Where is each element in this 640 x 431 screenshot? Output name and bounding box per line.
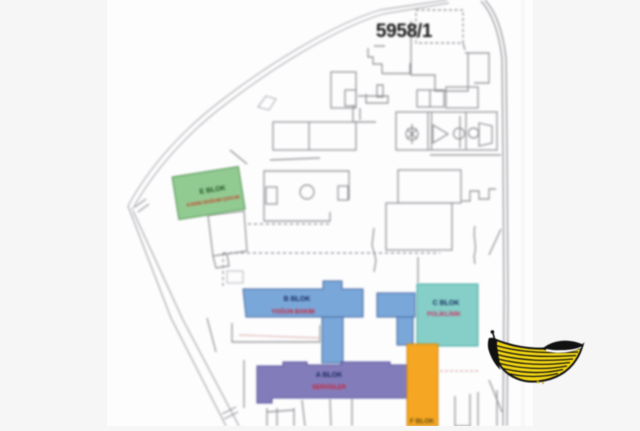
- svg-text:5958/1: 5958/1: [376, 21, 433, 42]
- svg-text:YOĞUN BAKIM: YOĞUN BAKIM: [271, 308, 314, 316]
- svg-text:SERVİSLER: SERVİSLER: [312, 384, 347, 391]
- svg-text:C BLOK: C BLOK: [433, 300, 460, 307]
- svg-text:A BLOK: A BLOK: [316, 372, 343, 379]
- svg-text:F BLOK: F BLOK: [410, 418, 434, 425]
- svg-text:POLİKLİNİK: POLİKLİNİK: [427, 311, 462, 318]
- svg-text:B BLOK: B BLOK: [284, 296, 311, 303]
